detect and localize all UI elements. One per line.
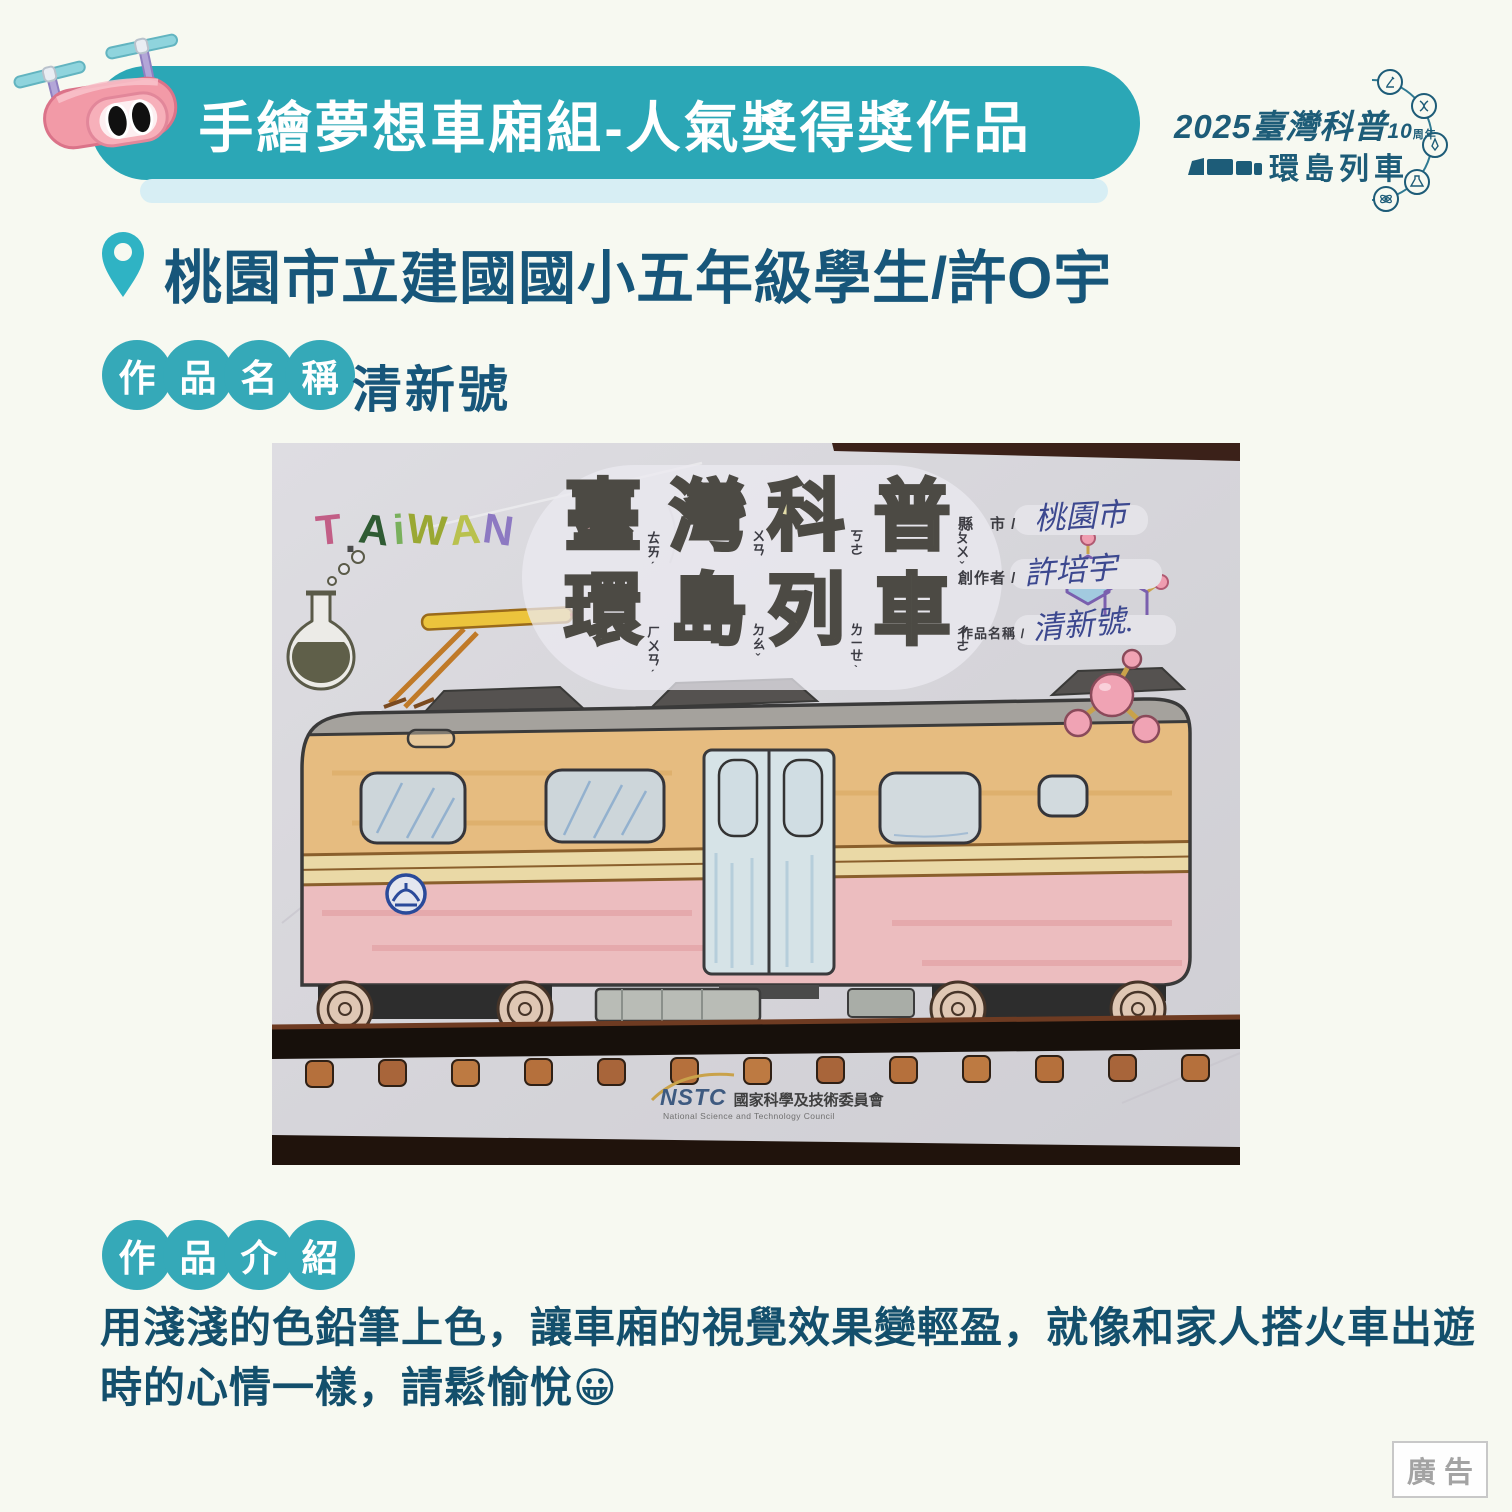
- winner-school-and-name: 桃園市立建國國小五年級學生/許O宇: [164, 231, 1112, 315]
- artwork-photo: T . A i W A N 臺 灣 科 普 ㄊㄞˊ ㄨㄢ ㄎㄜ ㄆㄨˇ 環 島 …: [272, 443, 1240, 1165]
- zhuyin-annotation: ㄏㄨㄢˊ: [645, 625, 659, 683]
- page-title: 手繪夢想車廂組-人氣獎得獎作品: [198, 83, 1031, 163]
- nstc-name-en: National Science and Technology Council: [663, 1111, 920, 1121]
- logo-anniversary-number: 10: [1387, 120, 1412, 143]
- title-banner: 手繪夢想車廂組-人氣獎得獎作品: [90, 66, 1140, 180]
- logo-train-name: 環島列車: [1269, 144, 1409, 188]
- county-handwritten: 桃園市: [1033, 489, 1128, 539]
- work-title-label: 作品名稱 /: [960, 623, 1025, 642]
- taiwan-word: T . A i W A N: [316, 509, 514, 551]
- badge-char: 名: [224, 340, 294, 410]
- zhuyin-annotation: ㄉㄠˇ: [750, 623, 764, 667]
- work-name-badge: 作 品 名 稱: [102, 340, 355, 410]
- logo-line1: 2025臺灣科普10周年: [1174, 100, 1437, 148]
- work-name-value: 清新號: [352, 350, 511, 422]
- zhuyin-annotation: ㄎㄜ: [848, 529, 862, 557]
- train-doors: [704, 750, 834, 974]
- bubble-char: 普: [864, 479, 960, 556]
- badge-char: 品: [163, 340, 233, 410]
- bubble-char: 島: [660, 573, 756, 650]
- poster-page: { "colors": { "page_bg": "#f7f9f1", "ban…: [0, 0, 1512, 1512]
- bubble-char: 車: [864, 573, 960, 650]
- tr-logo: [387, 875, 425, 913]
- microscope-icon: [1378, 70, 1402, 94]
- work-description: 用淺淺的色鉛筆上色，讓車廂的視覺效果變輕盈，就像和家人搭火車出遊時的心情一樣，請…: [100, 1298, 1490, 1417]
- taiwan-letter: W: [406, 507, 449, 552]
- creator-label: 創作者 /: [958, 567, 1016, 588]
- work-description-text: 用淺淺的色鉛筆上色，讓車廂的視覺效果變輕盈，就像和家人搭火車出遊時的心情一樣，請…: [100, 1304, 1476, 1411]
- taiwan-letter: i: [391, 509, 406, 552]
- work-title-handwritten: 清新號.: [1030, 595, 1134, 649]
- nstc-name-zh: 國家科學及技術委員會: [734, 1089, 884, 1110]
- train-silhouette-icon: [1186, 153, 1262, 179]
- ad-label: 廣告: [1392, 1441, 1488, 1498]
- zhuyin-annotation: ㄌㄧㄝˋ: [848, 623, 862, 678]
- bubble-char: 環: [555, 573, 651, 650]
- atom-icon: [1374, 187, 1398, 211]
- badge-char: 稱: [285, 340, 355, 410]
- taiwan-letter: T: [314, 508, 344, 552]
- badge-char: 品: [163, 1220, 233, 1290]
- zhuyin-annotation: ㄊㄞˊ: [645, 531, 659, 575]
- county-label: 縣 市 /: [958, 513, 1016, 534]
- badge-char: 紹: [285, 1220, 355, 1290]
- logo-brand: 臺灣科普: [1251, 108, 1387, 145]
- banner-underline-strip: [140, 179, 1108, 203]
- work-intro-badge: 作 品 介 紹: [102, 1220, 355, 1290]
- bubble-char: 灣: [660, 479, 756, 556]
- pig-drone-mascot-icon: [10, 24, 205, 164]
- bubble-char: 列: [758, 573, 854, 650]
- zhuyin-annotation: ㄨㄢ: [750, 529, 764, 557]
- logo-line2: 環島列車: [1186, 144, 1409, 188]
- taiwan-letter: A: [448, 508, 482, 552]
- badge-char: 作: [102, 340, 172, 410]
- taiwan-letter: .: [345, 517, 357, 559]
- train-drawing: [272, 668, 1240, 1087]
- badge-char: 介: [224, 1220, 294, 1290]
- taiwan-letter: N: [481, 507, 517, 553]
- creator-handwritten: 許培宇: [1023, 542, 1119, 593]
- logo-year: 2025: [1174, 108, 1251, 145]
- nstc-abbr: NSTC: [660, 1084, 727, 1111]
- grinning-face-emoji: 😀: [573, 1364, 618, 1411]
- nstc-logo: NSTC 國家科學及技術委員會 National Science and Tec…: [660, 1084, 920, 1121]
- badge-char: 作: [102, 1220, 172, 1290]
- logo-anniversary-unit: 周年: [1413, 129, 1437, 141]
- bubble-char: 臺: [555, 479, 651, 556]
- taiwan-letter: A: [357, 507, 392, 552]
- location-pin-icon: [99, 229, 147, 304]
- bubble-char: 科: [758, 479, 854, 556]
- event-logo: 2025臺灣科普10周年 環島列車: [1160, 68, 1480, 223]
